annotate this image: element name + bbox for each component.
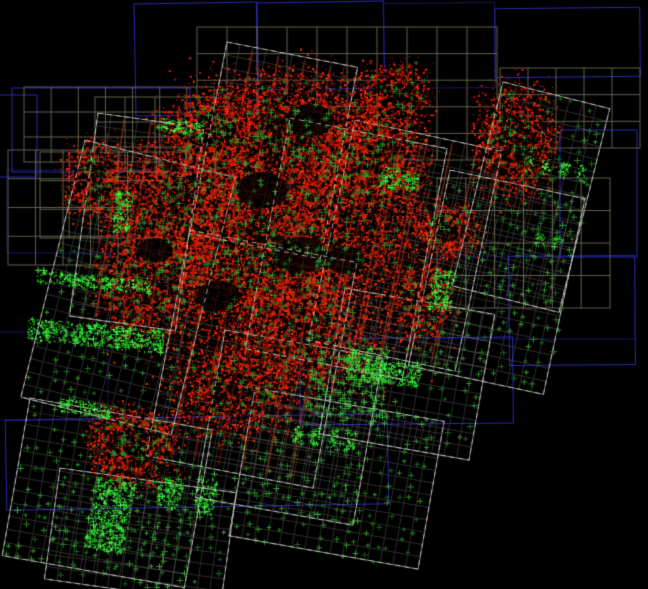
survey-field-mosaic-canvas	[0, 0, 648, 589]
sky-coverage-viewport	[0, 0, 648, 589]
